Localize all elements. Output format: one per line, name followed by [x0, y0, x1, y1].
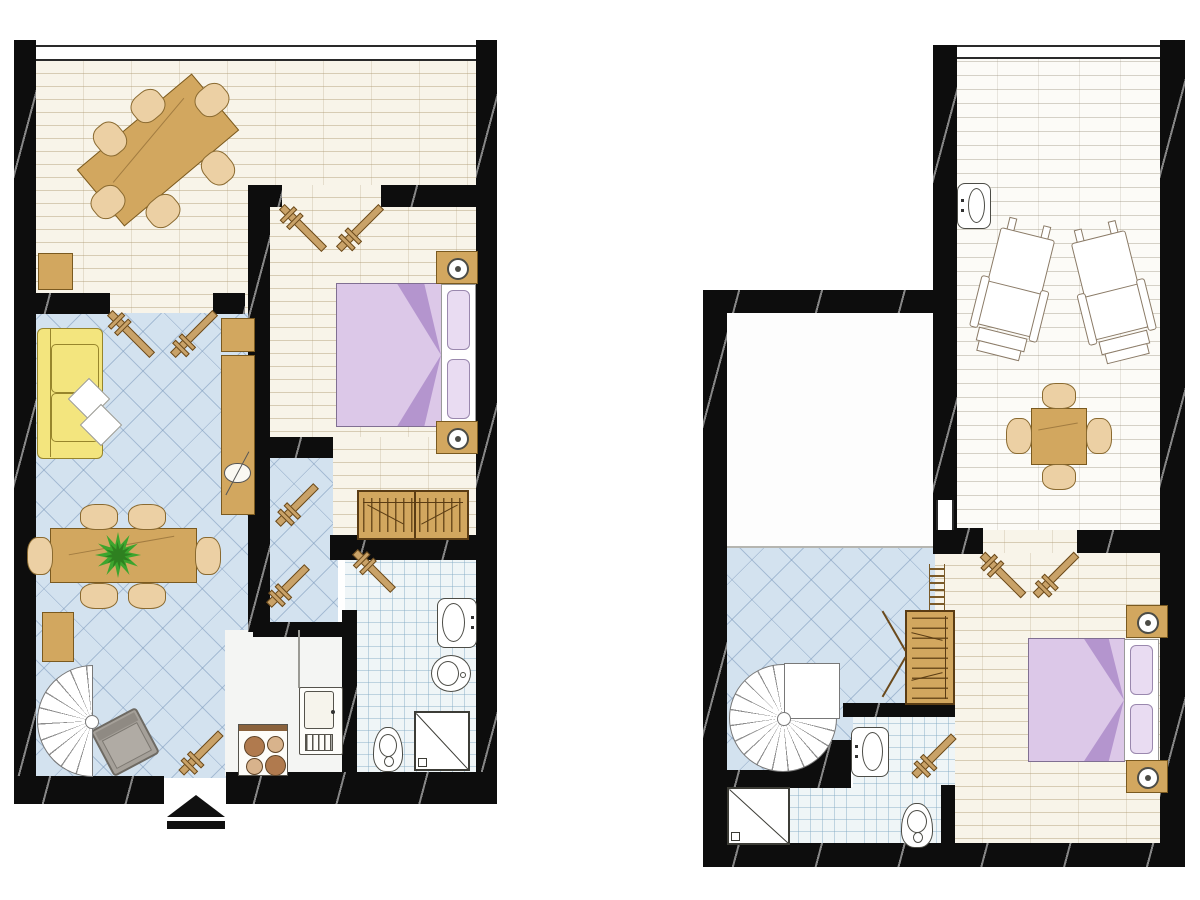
- faucet-dot: [961, 199, 964, 202]
- stair-center: [777, 712, 791, 726]
- basin: [862, 732, 883, 771]
- lamp-dot: [1145, 775, 1151, 781]
- spiral-staircase: [729, 664, 837, 772]
- floor-plan-canvas: [0, 0, 1200, 900]
- window: [936, 500, 954, 530]
- stair-landing: [784, 663, 840, 719]
- toilet: [901, 803, 933, 848]
- chair: [1086, 418, 1112, 454]
- bed-pillow: [1130, 704, 1153, 754]
- chair: [1042, 383, 1076, 409]
- lamp-dot: [1145, 620, 1151, 626]
- faucet-dot: [855, 745, 858, 748]
- shower: [727, 787, 790, 845]
- chair: [1042, 464, 1076, 490]
- terrace-sink: [957, 183, 991, 229]
- radiator-coil: [929, 564, 945, 612]
- wall: [1160, 40, 1185, 867]
- wall: [941, 785, 955, 845]
- flush: [913, 832, 923, 843]
- bed-pillow: [1130, 645, 1153, 695]
- bathroom-sink: [851, 727, 889, 777]
- wardrobe: [905, 610, 955, 705]
- basin: [968, 188, 985, 223]
- nightstand: [1126, 605, 1168, 638]
- open-room-floor: [727, 313, 933, 548]
- bed-blanket: [1028, 638, 1125, 762]
- double-bed: [1028, 638, 1160, 762]
- nightstand: [1126, 760, 1168, 793]
- table-grain: [1039, 422, 1079, 430]
- window: [957, 45, 1160, 59]
- floor-divider: [727, 546, 935, 548]
- bowl: [907, 810, 927, 833]
- wall: [703, 843, 1185, 867]
- wall: [703, 290, 937, 313]
- faucet-dot: [961, 209, 964, 212]
- wall: [843, 703, 955, 717]
- shelf-ticks: [912, 616, 948, 699]
- wall: [933, 528, 983, 554]
- faucet-dot: [855, 755, 858, 758]
- wall: [1077, 530, 1185, 553]
- drain: [731, 832, 740, 841]
- rail: [945, 616, 946, 699]
- bed-sheet: [1124, 639, 1159, 761]
- terrace-table: [1031, 408, 1087, 465]
- upper-floor-plan: [0, 0, 1200, 900]
- chair: [1006, 418, 1032, 454]
